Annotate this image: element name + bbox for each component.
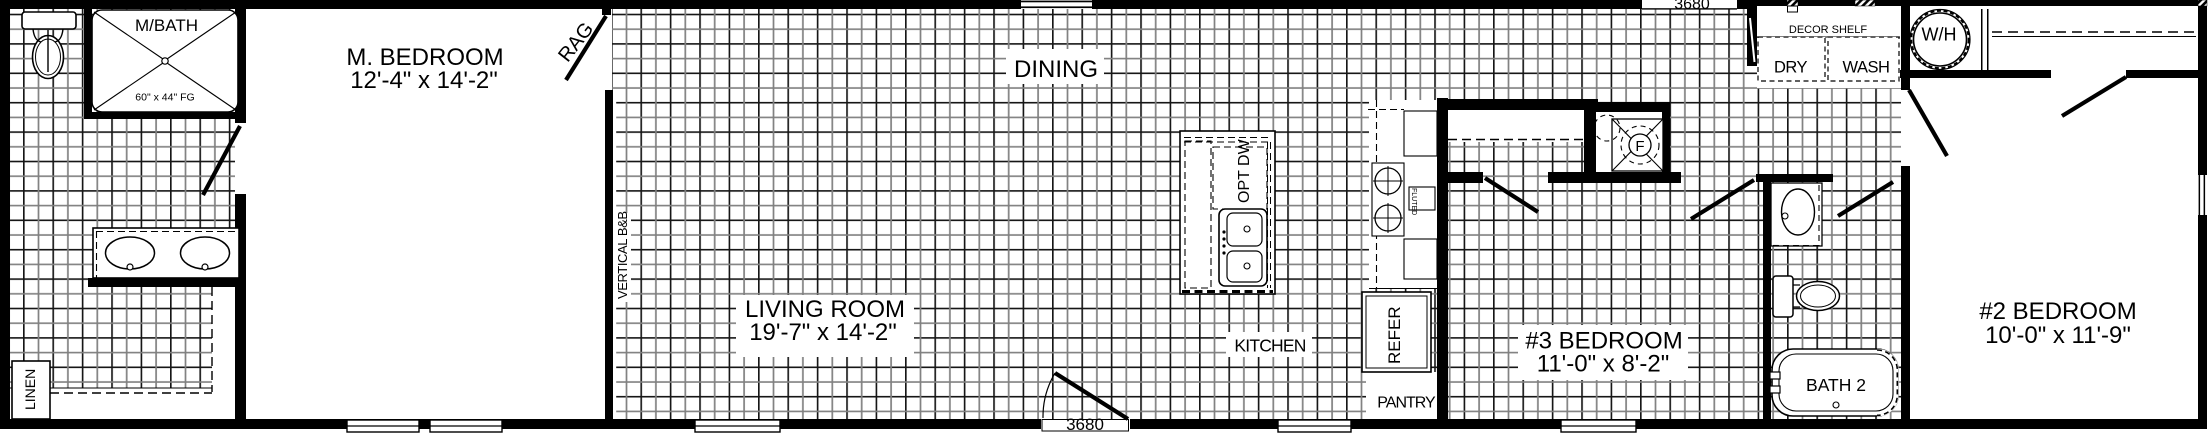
svg-text:3680: 3680 [1674, 0, 1710, 13]
svg-text:REFER: REFER [1385, 306, 1404, 364]
svg-text:PANTRY: PANTRY [1377, 395, 1436, 412]
svg-text:F: F [1635, 138, 1644, 155]
svg-text:DINING: DINING [1014, 56, 1098, 83]
svg-text:LINEN: LINEN [22, 369, 38, 410]
svg-text:10'-0" x 11'-9": 10'-0" x 11'-9" [1985, 322, 2131, 349]
svg-text:OPT DW: OPT DW [1236, 138, 1253, 203]
svg-text:WASH: WASH [1843, 59, 1890, 77]
svg-text:VERTICAL B&B: VERTICAL B&B [615, 211, 630, 299]
svg-text:#2 BEDROOM: #2 BEDROOM [1979, 298, 2136, 325]
svg-text:11'-0" x 8'-2": 11'-0" x 8'-2" [1537, 351, 1669, 378]
svg-text:3680: 3680 [1066, 415, 1104, 434]
svg-text:KITCHEN: KITCHEN [1234, 336, 1305, 356]
svg-text:BATH 2: BATH 2 [1806, 375, 1866, 395]
svg-text:19'-7" x 14'-2": 19'-7" x 14'-2" [749, 319, 897, 346]
svg-text:W/H: W/H [1922, 25, 1957, 45]
svg-text:12'-4" x 14'-2": 12'-4" x 14'-2" [350, 67, 498, 94]
svg-text:DECOR SHELF: DECOR SHELF [1789, 24, 1868, 36]
svg-text:DRY: DRY [1774, 59, 1808, 77]
svg-text:FLUTED: FLUTED [1410, 188, 1417, 215]
svg-text:M/BATH: M/BATH [135, 16, 198, 35]
svg-text:60" x 44" FG: 60" x 44" FG [135, 92, 194, 104]
